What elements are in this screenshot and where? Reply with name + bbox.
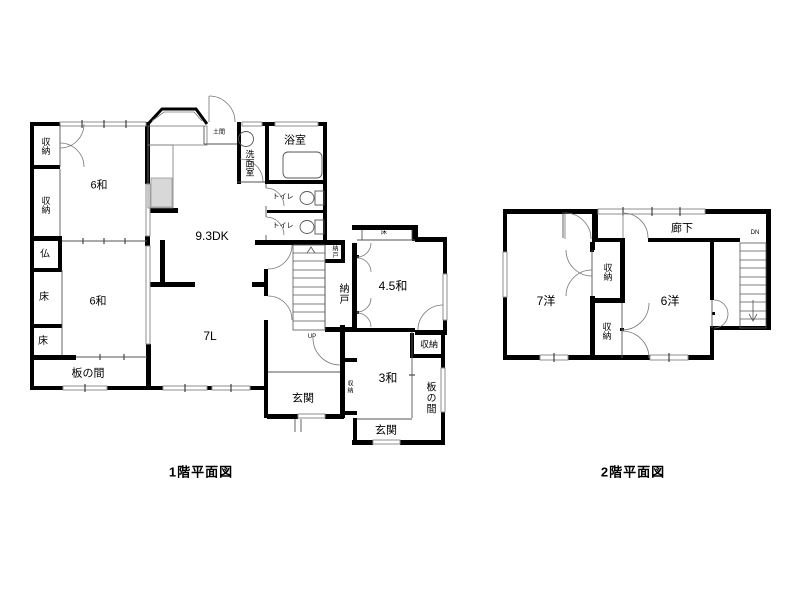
room-label-toilet2: トイレ (273, 223, 294, 230)
room-label-storage-lower-2f: 収納 (602, 322, 611, 340)
room-label-3tatami: 3和 (379, 372, 398, 384)
floor2-ticks (554, 207, 680, 362)
floor2-plan (503, 207, 771, 362)
stairs-down-label: DN (751, 230, 760, 236)
room-label-doma: 土間 (213, 130, 225, 136)
room-label-nando: 納戸 (337, 283, 347, 305)
room-label-toko1: 床 (39, 293, 49, 303)
floorplan-drawing (0, 0, 800, 600)
room-label-toko3: 床 (381, 230, 387, 236)
floor1-title: 1階平面図 (169, 466, 233, 479)
room-label-corridor: 廊下 (671, 224, 693, 235)
floor1-plan (30, 96, 447, 445)
room-label-itanoma-right: 板の間 (424, 382, 434, 415)
toilet-icon-2 (300, 220, 324, 234)
room-label-genkan-main: 玄関 (292, 394, 314, 405)
toilet-icon-1 (300, 191, 324, 205)
room-label-toko2: 床 (38, 337, 48, 347)
kitchen-sink (151, 178, 172, 207)
stairs-up-label: UP (308, 334, 316, 340)
room-label-washroom: 洗面室 (245, 150, 254, 177)
room-label-living: 7L (203, 330, 216, 342)
stairs-2f (740, 243, 766, 328)
room-label-storage-top2: 収納 (41, 196, 50, 214)
room-label-nando-small: 納戸 (331, 245, 337, 259)
floorplan-canvas: 収納 収納 6和 仏 床 6和 床 板の間 9.3DK 7L 土間 洗面室 浴室… (0, 0, 800, 600)
bathtub-icon (283, 152, 322, 178)
room-label-toilet1: トイレ (273, 194, 294, 201)
kitchen-counter (148, 126, 207, 208)
room-label-storage-upper-2f: 収納 (603, 263, 612, 281)
room-label-storage-top1: 収納 (41, 137, 50, 155)
floor2-walls (503, 209, 771, 360)
room-label-genkan2: 玄関 (375, 426, 397, 437)
room-label-storage-tiny: 収納 (346, 380, 352, 394)
room-label-storage-right: 収納 (420, 341, 438, 350)
room-label-7western: 7洋 (537, 295, 556, 307)
room-label-4.5tatami: 4.5和 (379, 280, 408, 292)
room-label-6western: 6洋 (661, 295, 680, 307)
floor2-door-arcs (565, 213, 728, 358)
floor2-title: 2階平面図 (601, 466, 665, 479)
stairs-1f (293, 245, 325, 330)
room-label-bath: 浴室 (284, 136, 306, 147)
room-label-6tatami-lower: 6和 (89, 297, 106, 308)
room-label-butsudan: 仏 (40, 250, 50, 260)
room-label-dk: 9.3DK (195, 230, 228, 242)
front-door-arc (209, 96, 235, 122)
room-label-itanoma-left: 板の間 (72, 369, 105, 380)
room-label-6tatami-upper: 6和 (90, 181, 107, 192)
stairs-up-arrow (307, 247, 315, 253)
